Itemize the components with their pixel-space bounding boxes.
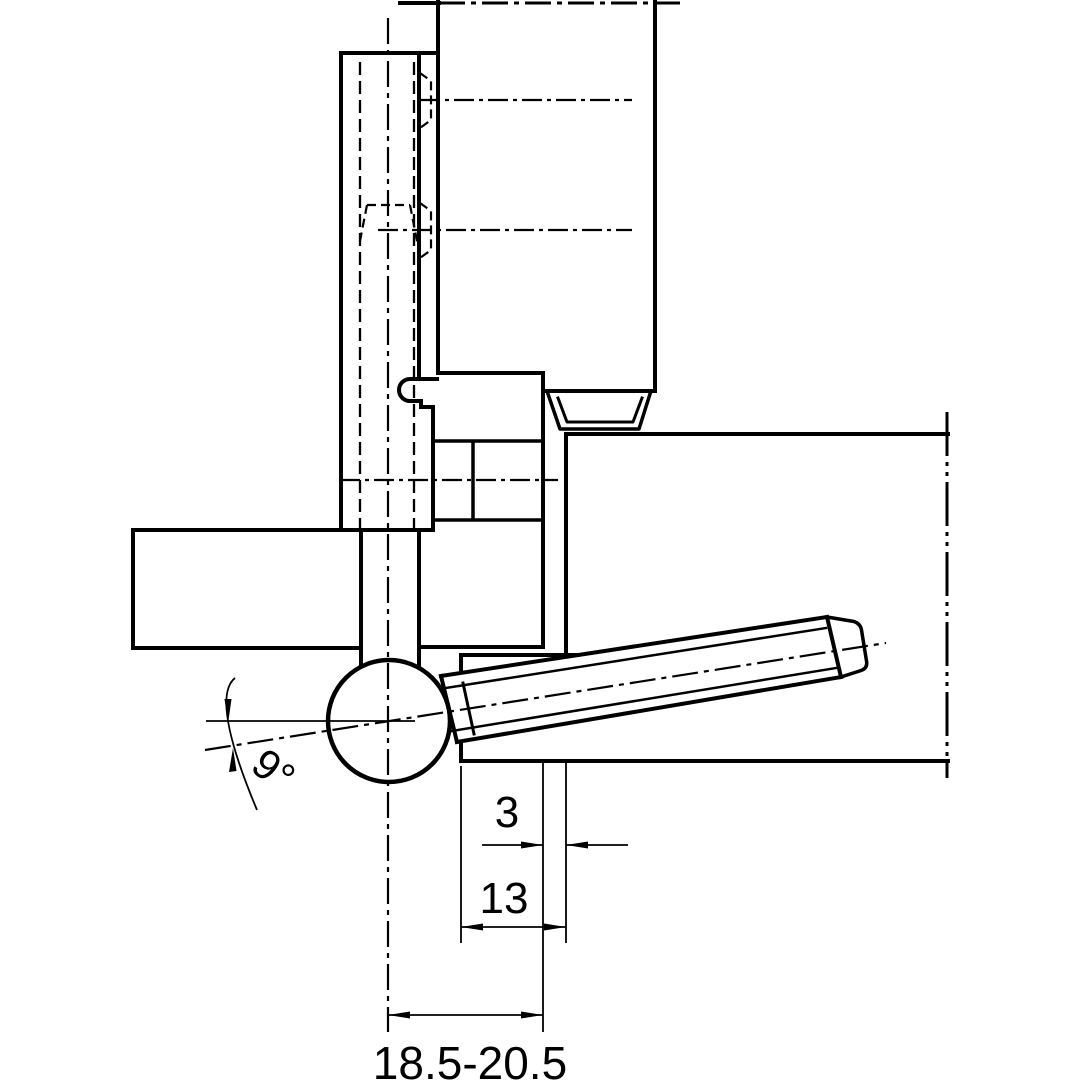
hinge-sleeve [133, 53, 543, 667]
center-lines [205, 3, 947, 1032]
angle-label: 9° [243, 739, 304, 801]
sleeve-retainer-nose [133, 379, 437, 648]
dimension-seal-gap: 3 [482, 788, 628, 849]
angle-arc [226, 678, 257, 810]
technical-drawing: 9° 3 13 18.5-20.5 [0, 0, 1080, 1080]
seal-gap-label: 3 [495, 788, 519, 837]
frame-profile-outline [420, 2, 948, 761]
seal-profile [548, 394, 650, 429]
drawing-canvas: 9° 3 13 18.5-20.5 [0, 0, 1080, 1080]
rebate-depth-label: 13 [480, 874, 529, 923]
dimension-rebate-depth: 13 [461, 874, 566, 931]
dimension-drill-range: 18.5-20.5 [373, 1012, 567, 1080]
drill-range-label: 18.5-20.5 [373, 1037, 567, 1080]
